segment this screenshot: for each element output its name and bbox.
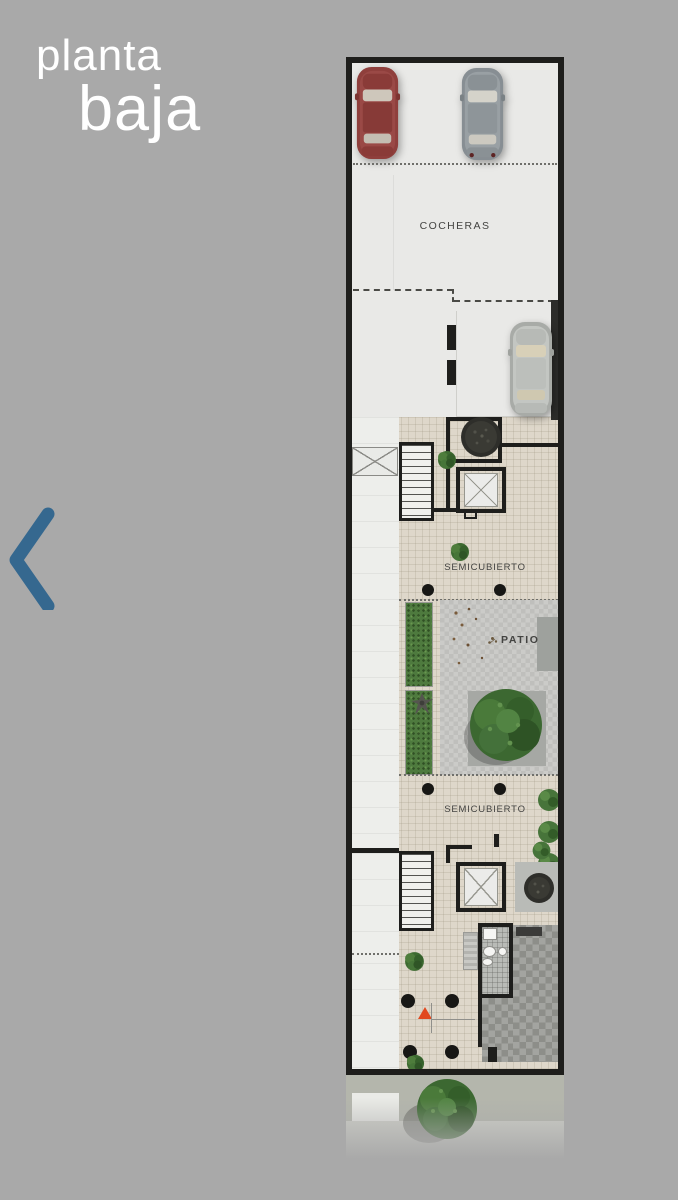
car-silver xyxy=(506,319,556,419)
column-marker xyxy=(447,360,456,385)
void-cross-marker xyxy=(352,447,398,476)
column-dot xyxy=(494,584,506,596)
label-patio: PATIO xyxy=(501,634,540,646)
statue xyxy=(410,691,434,717)
wall-segment xyxy=(488,1047,497,1062)
plant xyxy=(403,950,426,973)
column-dot xyxy=(401,994,415,1008)
toilet xyxy=(483,946,496,957)
bush xyxy=(531,840,552,861)
garage-guide-line xyxy=(393,175,394,290)
column-marker xyxy=(494,834,499,847)
stairs-upper xyxy=(399,442,434,521)
column-dot xyxy=(422,584,434,596)
entry-mat xyxy=(463,932,478,970)
plant xyxy=(436,449,458,471)
column-dot xyxy=(445,994,459,1008)
wall-segment xyxy=(500,443,558,447)
bush xyxy=(536,787,562,813)
entry-triangle-marker xyxy=(418,1007,432,1019)
title-line2: baja xyxy=(78,78,201,141)
kitchen-stone-floor xyxy=(513,925,558,1062)
title-line1: planta xyxy=(36,34,201,78)
column-dot xyxy=(445,1045,459,1059)
garage-divider-dashed xyxy=(454,300,554,302)
label-semicubierto-upper: SEMICUBIERTO xyxy=(412,562,558,573)
label-cocheras: COCHERAS xyxy=(352,220,558,232)
elevator-lower xyxy=(464,868,498,906)
page-title: planta baja xyxy=(36,34,201,141)
door-swing-line xyxy=(431,1003,432,1033)
column-dot xyxy=(494,783,506,795)
garage-divider-dashed xyxy=(353,289,453,291)
column-marker xyxy=(447,325,456,350)
label-patio-group: PATIO xyxy=(487,634,540,646)
patio-planter xyxy=(537,617,558,671)
floor-plan-image[interactable]: COCHERAS xyxy=(346,57,564,1075)
room-dotted-boundary xyxy=(352,953,399,955)
parking-boundary-dotted xyxy=(353,163,557,165)
chevron-left-icon xyxy=(6,506,64,610)
kitchen-counter xyxy=(516,927,542,936)
sink xyxy=(483,928,497,940)
bottom-fade xyxy=(340,1098,570,1182)
bidet xyxy=(498,947,507,956)
patio-tree xyxy=(460,681,552,773)
wall-segment xyxy=(478,998,482,1047)
planter-tree-upper xyxy=(459,415,503,459)
car-gray xyxy=(458,65,507,163)
patio-boundary-dotted xyxy=(399,774,558,776)
side-passage-floor xyxy=(352,417,399,1069)
toilet xyxy=(482,958,493,966)
bathroom xyxy=(478,923,513,998)
duct-box xyxy=(464,509,477,519)
plant xyxy=(449,541,471,563)
patio-marker-icon xyxy=(487,635,498,646)
car-red xyxy=(353,63,402,163)
screen: planta baja xyxy=(0,0,678,1200)
wall-segment xyxy=(446,845,472,849)
room-lower-left xyxy=(352,848,399,953)
door-swing-line xyxy=(431,1019,475,1020)
hedge-planter-1 xyxy=(405,602,433,687)
stairs-lower xyxy=(399,851,434,931)
column-dot xyxy=(422,783,434,795)
wall-segment xyxy=(432,508,456,512)
parking-bay-line xyxy=(456,311,457,417)
elevator-upper xyxy=(464,473,498,507)
kitchen-stone-floor xyxy=(482,998,513,1062)
planter-tree-lower xyxy=(523,872,555,904)
back-button[interactable] xyxy=(6,506,64,610)
